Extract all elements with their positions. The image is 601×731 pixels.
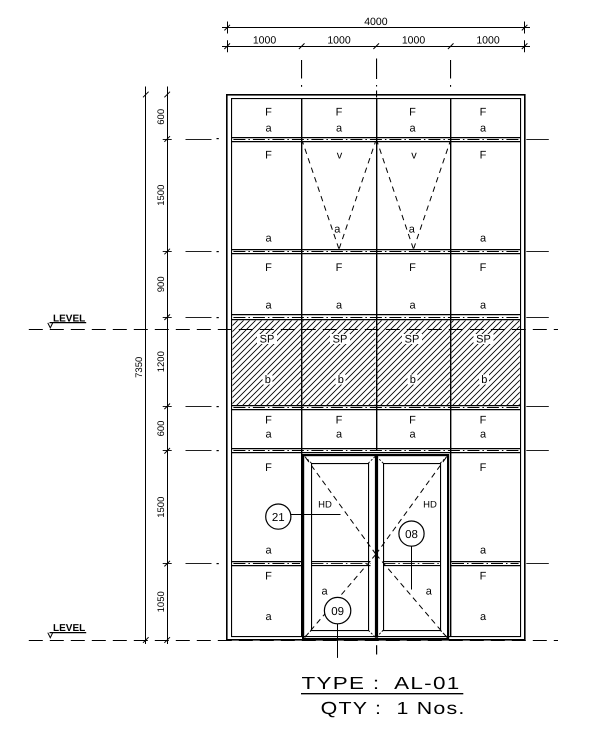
svg-text:b: b (410, 374, 416, 386)
svg-text:F: F (409, 106, 416, 118)
svg-text:a: a (265, 429, 272, 441)
svg-text:SP: SP (476, 334, 491, 346)
svg-text:a: a (265, 232, 272, 244)
svg-text:a: a (265, 299, 272, 311)
svg-text:F: F (336, 415, 343, 427)
svg-text:a: a (336, 429, 343, 441)
svg-text:1050: 1050 (156, 591, 167, 612)
svg-text:600: 600 (156, 421, 167, 437)
svg-text:F: F (336, 106, 343, 118)
svg-text:1000: 1000 (402, 35, 426, 47)
svg-text:v: v (337, 150, 343, 162)
svg-text:1000: 1000 (327, 35, 351, 47)
svg-text:a: a (409, 122, 416, 134)
svg-text:a: a (409, 299, 416, 311)
svg-text:a: a (336, 299, 343, 311)
svg-text:F: F (409, 262, 416, 274)
svg-text:a: a (480, 429, 487, 441)
svg-text:F: F (480, 262, 487, 274)
svg-text:4000: 4000 (364, 16, 388, 28)
svg-text:F: F (265, 415, 272, 427)
svg-text:F: F (480, 150, 487, 162)
svg-text:a: a (334, 223, 341, 235)
svg-text:1000: 1000 (476, 35, 500, 47)
svg-text:09: 09 (331, 606, 344, 618)
svg-text:F: F (336, 262, 343, 274)
svg-text:HD: HD (423, 500, 437, 511)
svg-text:F: F (480, 462, 487, 474)
svg-text:F: F (265, 150, 272, 162)
svg-text:a: a (265, 122, 272, 134)
svg-text:SP: SP (260, 334, 275, 346)
svg-text:b: b (481, 374, 487, 386)
svg-text:F: F (409, 415, 416, 427)
svg-text:a: a (480, 545, 487, 557)
svg-text:QTY : 1 Nos.: QTY : 1 Nos. (321, 698, 466, 718)
svg-text:1000: 1000 (253, 35, 277, 47)
svg-text:b: b (338, 374, 344, 386)
svg-text:b: b (265, 374, 271, 386)
svg-text:a: a (480, 299, 487, 311)
svg-text:F: F (265, 262, 272, 274)
svg-text:600: 600 (156, 109, 167, 125)
svg-text:TYPE : AL-01: TYPE : AL-01 (302, 673, 461, 693)
svg-text:F: F (480, 415, 487, 427)
svg-text:a: a (480, 611, 487, 623)
svg-text:F: F (265, 462, 272, 474)
svg-text:HD: HD (318, 500, 332, 511)
svg-text:v: v (411, 150, 417, 162)
svg-text:F: F (265, 571, 272, 583)
svg-text:SP: SP (405, 334, 420, 346)
svg-text:1500: 1500 (156, 497, 167, 518)
svg-text:08: 08 (405, 529, 418, 541)
svg-text:a: a (480, 232, 487, 244)
svg-text:F: F (480, 571, 487, 583)
svg-text:1500: 1500 (156, 185, 167, 206)
svg-text:a: a (426, 586, 433, 598)
svg-text:a: a (409, 223, 416, 235)
svg-text:a: a (336, 122, 343, 134)
svg-text:1200: 1200 (156, 351, 167, 372)
svg-text:F: F (265, 106, 272, 118)
svg-text:7350: 7350 (134, 357, 145, 378)
svg-text:a: a (409, 429, 416, 441)
svg-text:a: a (480, 122, 487, 134)
svg-text:a: a (321, 586, 328, 598)
svg-text:a: a (265, 545, 272, 557)
svg-text:21: 21 (272, 512, 285, 524)
svg-text:SP: SP (333, 334, 348, 346)
svg-text:900: 900 (156, 276, 167, 292)
svg-text:a: a (265, 611, 272, 623)
svg-text:F: F (480, 106, 487, 118)
